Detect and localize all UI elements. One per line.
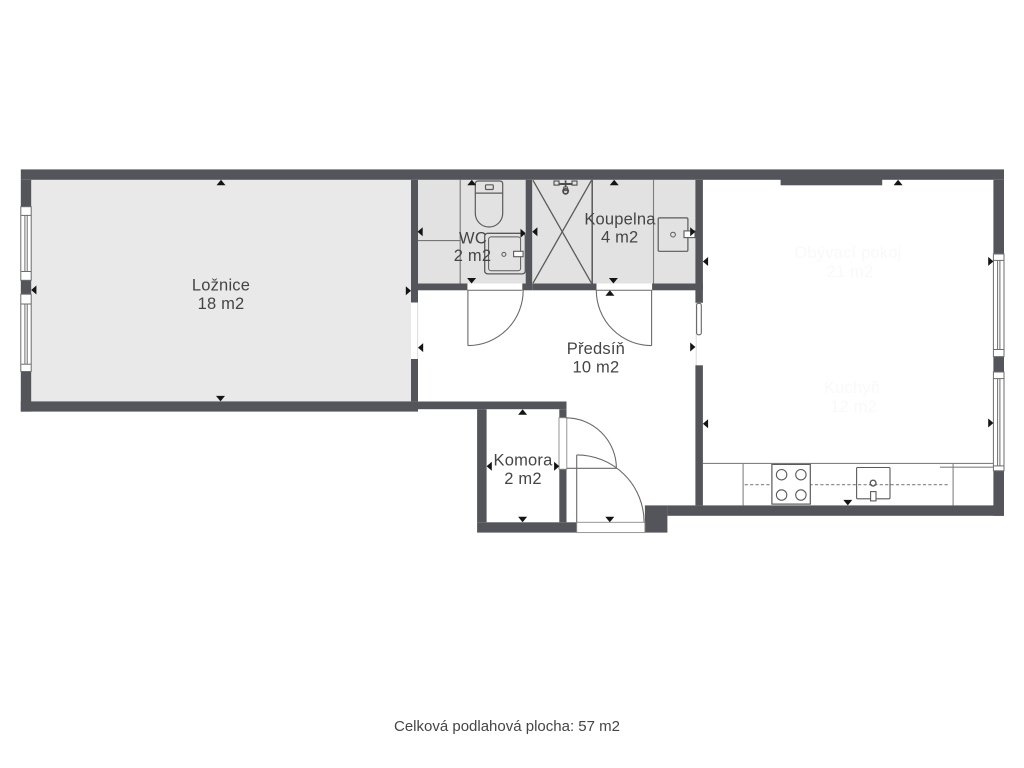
svg-text:WC: WC: [459, 229, 487, 247]
svg-text:18 m2: 18 m2: [198, 295, 245, 313]
svg-text:4 m2: 4 m2: [601, 228, 638, 246]
svg-text:Obývací pokoj: Obývací pokoj: [794, 244, 901, 262]
svg-text:Kuchyň: Kuchyň: [824, 379, 880, 397]
svg-text:2 m2: 2 m2: [454, 247, 491, 265]
svg-text:12 m2: 12 m2: [830, 398, 877, 416]
svg-text:Komora: Komora: [494, 452, 554, 470]
svg-text:Předsíň: Předsíň: [567, 340, 625, 358]
svg-text:Ložnice: Ložnice: [192, 277, 250, 295]
svg-text:2 m2: 2 m2: [504, 470, 541, 488]
svg-text:21 m2: 21 m2: [827, 263, 874, 281]
svg-text:Celková podlahová plocha: 57 m: Celková podlahová plocha: 57 m2: [394, 718, 620, 735]
svg-text:10 m2: 10 m2: [572, 359, 619, 377]
svg-text:Koupelna: Koupelna: [584, 211, 656, 229]
